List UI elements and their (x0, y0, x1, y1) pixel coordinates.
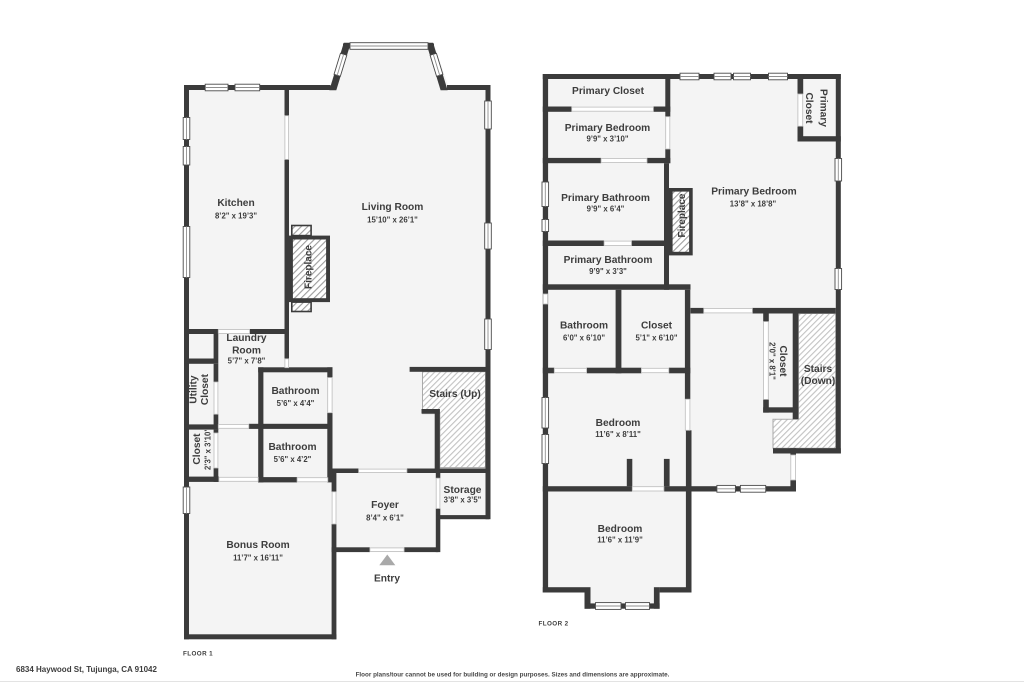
svg-text:Living Room: Living Room (362, 202, 424, 213)
svg-text:Fireplace: Fireplace (304, 245, 315, 289)
svg-text:Closet: Closet (641, 320, 673, 331)
svg-text:15’10" x 26’1": 15’10" x 26’1" (367, 216, 418, 225)
svg-text:Bathroom: Bathroom (268, 442, 316, 453)
svg-text:11’6" x 8’11": 11’6" x 8’11" (595, 430, 641, 439)
svg-text:Stairs: Stairs (804, 364, 833, 375)
svg-text:2’0" x 8’1": 2’0" x 8’1" (768, 342, 777, 380)
svg-text:Stairs (Up): Stairs (Up) (429, 389, 481, 400)
svg-text:9’9" x 3’10": 9’9" x 3’10" (586, 134, 628, 143)
svg-text:(Down): (Down) (801, 376, 836, 387)
svg-text:11’6" x 11’9": 11’6" x 11’9" (597, 536, 643, 545)
svg-text:Closet: Closet (200, 373, 211, 405)
svg-text:Bedroom: Bedroom (598, 524, 643, 535)
svg-text:13’8" x 18’8": 13’8" x 18’8" (730, 199, 777, 208)
svg-text:6834 Haywood St, Tujunga, CA 9: 6834 Haywood St, Tujunga, CA 91042 (16, 665, 157, 674)
svg-text:Bathroom: Bathroom (560, 320, 608, 331)
svg-text:8’2" x 19’3": 8’2" x 19’3" (215, 212, 257, 221)
svg-text:Bonus Room: Bonus Room (226, 540, 289, 551)
svg-text:Primary Bathroom: Primary Bathroom (561, 193, 650, 204)
svg-text:Primary Closet: Primary Closet (572, 86, 645, 97)
svg-text:Storage: Storage (444, 485, 482, 496)
svg-text:Closet: Closet (192, 433, 203, 465)
svg-text:Laundry: Laundry (226, 333, 267, 344)
svg-text:Primary: Primary (818, 89, 829, 127)
svg-text:Entry: Entry (374, 573, 400, 584)
svg-text:8’4" x 6’1": 8’4" x 6’1" (366, 514, 404, 523)
svg-text:Closet: Closet (777, 345, 788, 377)
svg-text:6’0" x 6’10": 6’0" x 6’10" (563, 333, 605, 342)
svg-text:2’3" x 3’10": 2’3" x 3’10" (203, 428, 212, 470)
svg-text:Bathroom: Bathroom (271, 386, 319, 397)
svg-text:3’8" x 3’5": 3’8" x 3’5" (444, 495, 482, 504)
svg-text:Floor plans/tour cannot be use: Floor plans/tour cannot be used for buil… (356, 671, 670, 678)
svg-text:FLOOR 1: FLOOR 1 (183, 650, 213, 657)
svg-text:5’1" x 6’10": 5’1" x 6’10" (635, 333, 677, 342)
svg-text:5’7" x 7’8": 5’7" x 7’8" (228, 357, 266, 366)
svg-text:5’6" x 4’2": 5’6" x 4’2" (274, 455, 312, 464)
svg-text:FLOOR 2: FLOOR 2 (539, 620, 569, 627)
svg-text:Primary Bathroom: Primary Bathroom (564, 255, 653, 266)
svg-text:Bedroom: Bedroom (596, 418, 641, 429)
svg-text:Closet: Closet (803, 92, 814, 124)
svg-text:Primary Bedroom: Primary Bedroom (711, 187, 797, 198)
svg-text:Fireplace: Fireplace (677, 193, 688, 237)
svg-text:Kitchen: Kitchen (217, 198, 254, 209)
svg-text:Utility: Utility (188, 375, 199, 404)
svg-text:Room: Room (232, 346, 261, 357)
svg-text:9’9" x 6’4": 9’9" x 6’4" (587, 205, 625, 214)
svg-text:9’9" x 3’3": 9’9" x 3’3" (589, 267, 627, 276)
svg-text:Foyer: Foyer (371, 500, 399, 511)
svg-text:11’7" x 16’11": 11’7" x 16’11" (233, 554, 283, 563)
svg-text:5’6" x 4’4": 5’6" x 4’4" (277, 399, 315, 408)
svg-text:Primary Bedroom: Primary Bedroom (565, 123, 651, 134)
